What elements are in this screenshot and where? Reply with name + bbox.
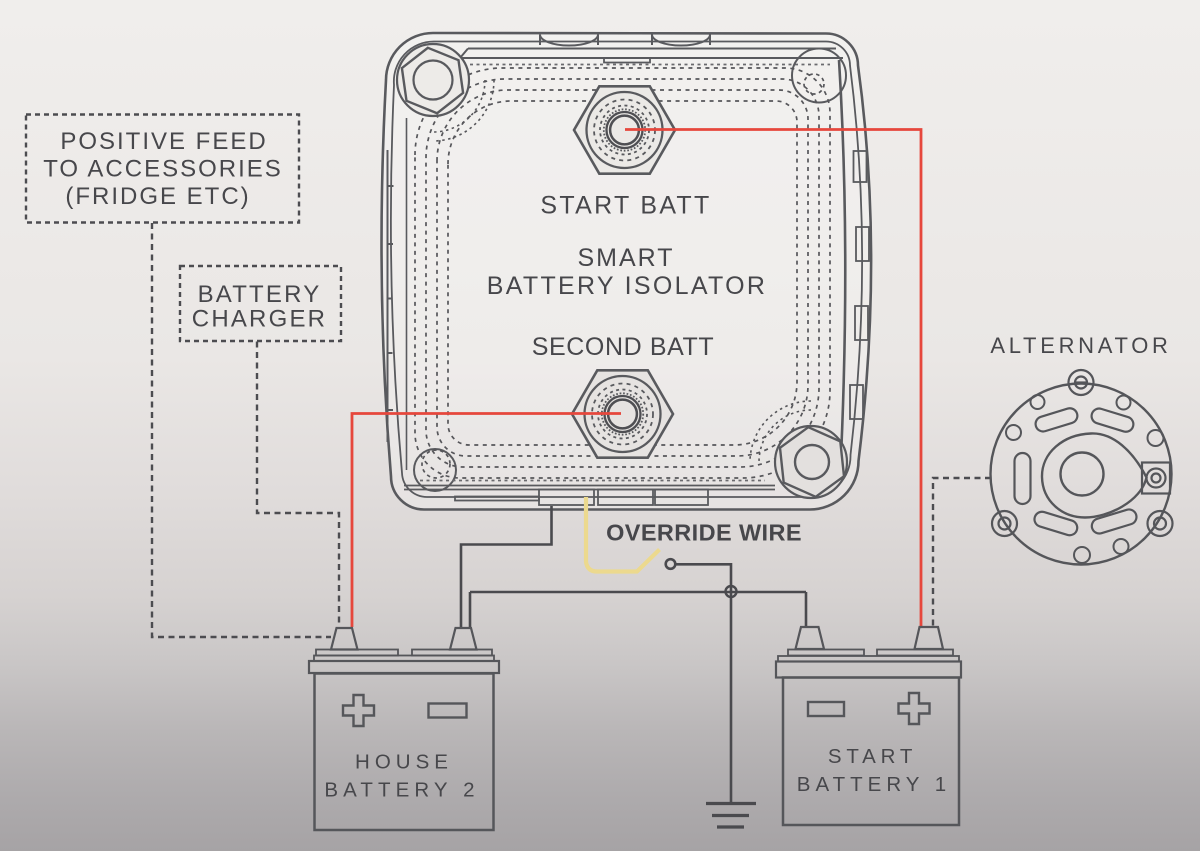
svg-text:BATTERY 2: BATTERY 2 — [324, 779, 479, 802]
svg-text:START BATT: START BATT — [540, 192, 711, 220]
svg-text:SMART: SMART — [577, 244, 674, 272]
svg-text:(FRIDGE ETC): (FRIDGE ETC) — [65, 183, 250, 210]
svg-text:BATTERY ISOLATOR: BATTERY ISOLATOR — [487, 272, 767, 300]
svg-text:TO ACCESSORIES: TO ACCESSORIES — [43, 156, 283, 183]
svg-text:BATTERY: BATTERY — [198, 281, 322, 308]
svg-text:ALTERNATOR: ALTERNATOR — [990, 333, 1171, 358]
svg-text:BATTERY 1: BATTERY 1 — [797, 773, 951, 796]
svg-text:CHARGER: CHARGER — [192, 306, 327, 333]
svg-text:START: START — [828, 745, 917, 768]
svg-text:OVERRIDE WIRE: OVERRIDE WIRE — [606, 520, 802, 546]
svg-text:HOUSE: HOUSE — [355, 751, 453, 774]
svg-text:SECOND BATT: SECOND BATT — [532, 333, 715, 361]
svg-text:POSITIVE FEED: POSITIVE FEED — [60, 128, 267, 155]
